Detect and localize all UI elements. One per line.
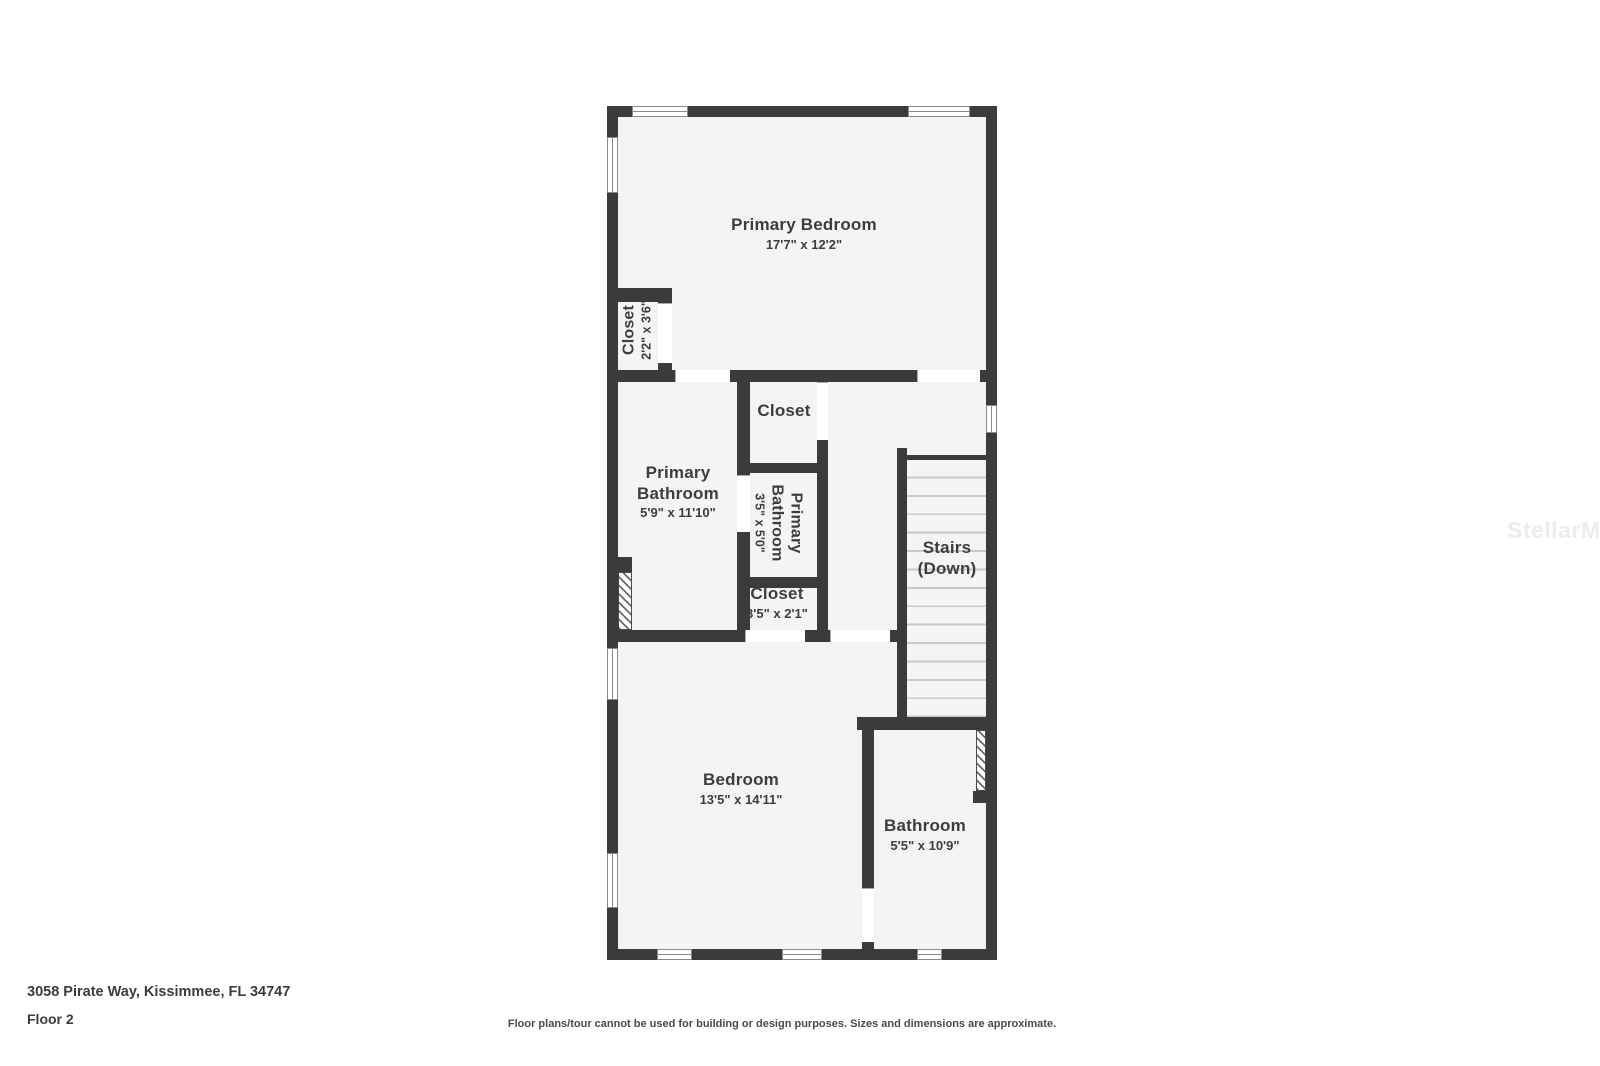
room-name: Primary Bathroom: [767, 480, 805, 566]
window-left-2: [607, 648, 618, 700]
wall-bathroom-left-a: [862, 717, 874, 888]
window-top-1: [632, 106, 688, 117]
window-bottom-1: [657, 949, 692, 960]
wall-band-bottom-b: [805, 630, 830, 642]
room-dims: 5'5" x 10'9": [884, 837, 966, 855]
room-dims: 3'5" x 2'1": [746, 605, 808, 623]
window-left-3: [607, 853, 618, 908]
room-sub: (Down): [918, 559, 977, 580]
door-bathroom: [862, 888, 874, 944]
label-bathroom: Bathroom 5'5" x 10'9": [884, 816, 966, 854]
wall-band-top-c: [980, 370, 986, 382]
hatch-cap-bathroom: [973, 791, 986, 803]
wall-stairs-bottom: [857, 717, 986, 730]
label-hall-closet: Closet: [757, 401, 810, 422]
wall-closet-right-b: [658, 363, 672, 370]
wall-pbath-right-a: [737, 382, 750, 475]
room-dims: 3'5" x 5'0": [751, 480, 767, 566]
room-dims: 2'2" x 3'6": [638, 300, 654, 360]
door-primary-closet: [658, 303, 672, 365]
wall-stairs-left: [897, 448, 907, 730]
wall-midcol-div-1: [737, 463, 828, 473]
room-name: Primary Bathroom: [618, 463, 738, 504]
room-name: Closet: [757, 401, 810, 422]
stellar-mls-watermark: StellarMLS: [1507, 517, 1600, 544]
disclaimer-text: Floor plans/tour cannot be used for buil…: [508, 1018, 1056, 1030]
label-primary-closet: Closet 2'2" x 3'6": [619, 300, 654, 360]
room-dims: 17'7" x 12'2": [731, 236, 877, 254]
door-pbath: [737, 475, 750, 534]
hatch-cap-pbath: [618, 557, 632, 572]
floor-plan-page: Primary Bedroom 17'7" x 12'2" Closet 2'2…: [0, 0, 1600, 1066]
property-address: 3058 Pirate Way, Kissimmee, FL 34747: [27, 984, 290, 1000]
label-stairs: Stairs (Down): [918, 538, 977, 579]
floor-plan: Primary Bedroom 17'7" x 12'2" Closet 2'2…: [607, 106, 997, 960]
door-primary-bedroom-entry: [917, 370, 982, 382]
opening-hall-bedroom: [830, 630, 892, 642]
label-bedroom: Bedroom 13'5" x 14'11": [700, 770, 783, 808]
window-left-1: [607, 137, 618, 193]
room-name: Primary Bedroom: [731, 215, 877, 236]
door-small-closet: [745, 630, 807, 642]
hatch-pbath: [618, 572, 632, 630]
wall-bathroom-left-b: [862, 942, 874, 949]
floor-label: Floor 2: [27, 1011, 74, 1027]
room-name: Bedroom: [700, 770, 783, 791]
window-top-2: [908, 106, 970, 117]
window-bottom-2: [782, 949, 822, 960]
wall-band-top-a: [618, 370, 675, 382]
wall-closet-right-a: [658, 288, 672, 303]
room-name: Closet: [619, 300, 638, 360]
label-primary-bathroom: Primary Bathroom 5'9" x 11'10": [618, 463, 738, 522]
window-bottom-3: [917, 949, 942, 960]
room-name: Stairs: [918, 538, 977, 559]
label-primary-bathroom-small: Primary Bathroom 3'5" x 5'0": [751, 480, 806, 566]
wall-exterior-left: [607, 106, 618, 960]
wall-exterior-right: [986, 106, 997, 960]
wall-band-top-b: [730, 370, 917, 382]
room-name: Closet: [746, 584, 808, 605]
room-dims: 5'9" x 11'10": [618, 504, 738, 522]
door-primary-bathroom-entry: [675, 370, 732, 382]
window-right-1: [986, 405, 997, 433]
door-hall-closet: [817, 382, 828, 442]
wall-band-bottom-a: [618, 630, 745, 642]
room-name: Bathroom: [884, 816, 966, 837]
label-primary-bedroom: Primary Bedroom 17'7" x 12'2": [731, 215, 877, 253]
hatch-bathroom: [976, 730, 986, 791]
room-dims: 13'5" x 14'11": [700, 791, 783, 809]
label-small-closet: Closet 3'5" x 2'1": [746, 584, 808, 622]
stair-treads: [907, 460, 986, 717]
